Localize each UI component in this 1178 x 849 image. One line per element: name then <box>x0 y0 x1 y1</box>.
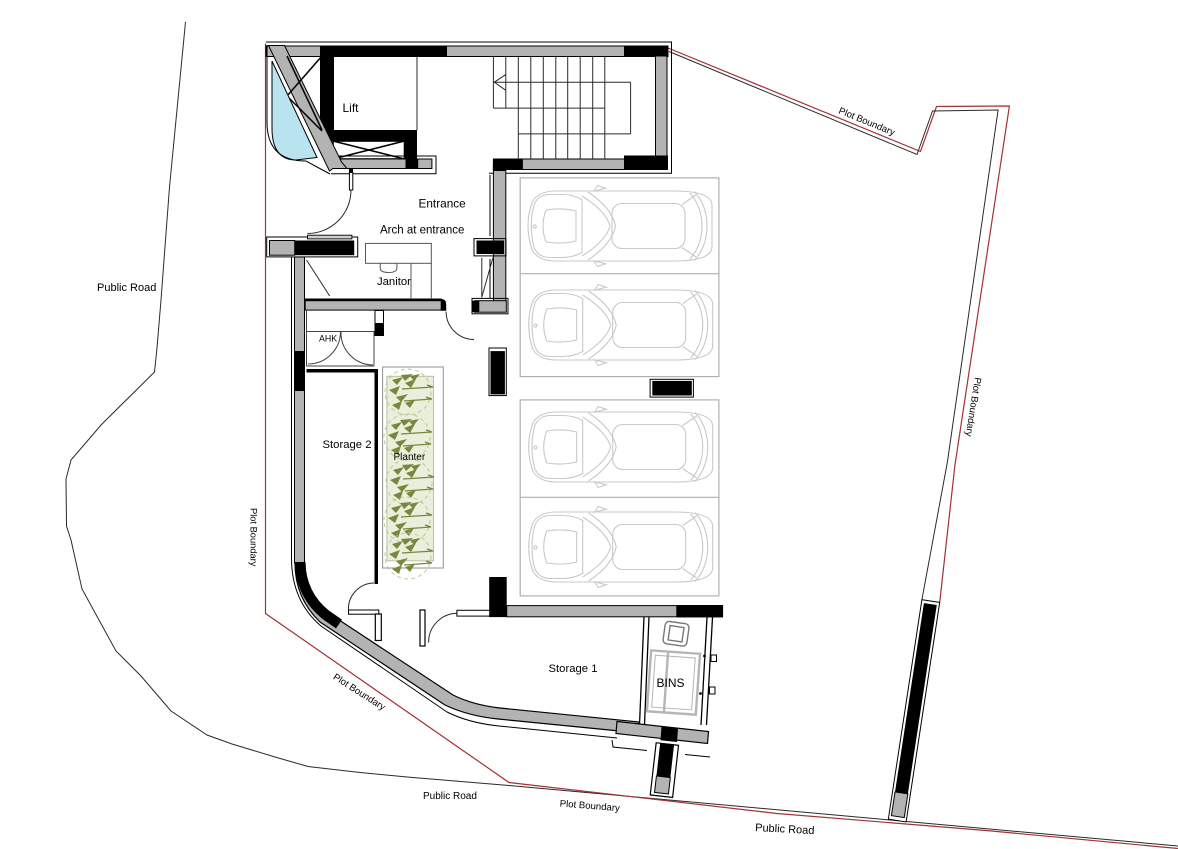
svg-text:Storage 2: Storage 2 <box>323 439 372 451</box>
svg-text:Storage 1: Storage 1 <box>549 663 598 675</box>
svg-text:Public Road: Public Road <box>97 282 156 294</box>
svg-text:Plot Boundary: Plot Boundary <box>249 508 259 567</box>
svg-text:Janitor: Janitor <box>377 276 411 288</box>
svg-text:Entrance: Entrance <box>419 197 467 211</box>
svg-text:AHK: AHK <box>319 334 337 344</box>
svg-text:Planter: Planter <box>394 452 426 463</box>
svg-text:Public Road: Public Road <box>423 791 477 802</box>
svg-text:BINS: BINS <box>657 676 685 690</box>
svg-text:Arch at entrance: Arch at entrance <box>380 225 464 237</box>
svg-text:Lift: Lift <box>343 101 360 115</box>
